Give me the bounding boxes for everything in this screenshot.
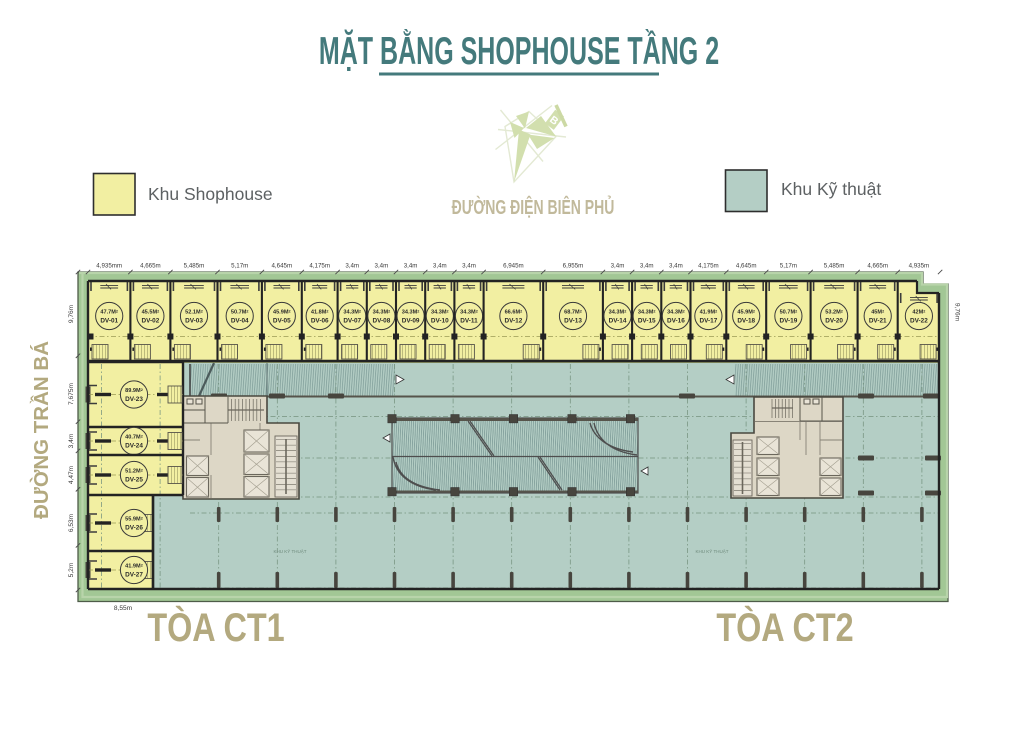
svg-text:DV-04: DV-04 bbox=[231, 318, 249, 325]
svg-text:Khu Shophouse: Khu Shophouse bbox=[148, 184, 273, 204]
svg-text:3,4m: 3,4m bbox=[611, 263, 625, 270]
svg-text:4,665m: 4,665m bbox=[140, 263, 161, 270]
svg-text:3,4m: 3,4m bbox=[433, 263, 447, 270]
svg-text:MẶT BẰNG SHOPHOUSE TẦNG 2: MẶT BẰNG SHOPHOUSE TẦNG 2 bbox=[319, 28, 719, 72]
svg-text:DV-27: DV-27 bbox=[125, 572, 143, 579]
svg-text:DV-21: DV-21 bbox=[869, 318, 887, 325]
svg-text:3,4m: 3,4m bbox=[640, 263, 654, 270]
svg-text:34.3M2: 34.3M2 bbox=[609, 309, 627, 315]
svg-text:4,935mm: 4,935mm bbox=[96, 263, 122, 270]
svg-text:40.7M2: 40.7M2 bbox=[125, 434, 143, 440]
svg-text:DV-18: DV-18 bbox=[737, 318, 755, 325]
svg-text:53.2M2: 53.2M2 bbox=[825, 309, 843, 315]
svg-text:ĐƯỜNG TRẦN BÁ: ĐƯỜNG TRẦN BÁ bbox=[29, 341, 53, 519]
svg-text:ĐƯỜNG ĐIỆN BIÊN PHỦ: ĐƯỜNG ĐIỆN BIÊN PHỦ bbox=[452, 195, 615, 218]
svg-text:KHU KỸ THUẬT: KHU KỸ THUẬT bbox=[274, 548, 307, 554]
svg-text:DV-05: DV-05 bbox=[273, 318, 291, 325]
svg-text:47.7M2: 47.7M2 bbox=[100, 309, 118, 315]
svg-text:DV-01: DV-01 bbox=[100, 318, 118, 325]
svg-text:6,955m: 6,955m bbox=[563, 263, 584, 270]
svg-text:DV-11: DV-11 bbox=[460, 318, 478, 325]
svg-text:KHU KỸ THUẬT: KHU KỸ THUẬT bbox=[696, 548, 729, 554]
svg-text:41.9M2: 41.9M2 bbox=[125, 563, 143, 569]
svg-text:51.2M2: 51.2M2 bbox=[125, 468, 143, 474]
svg-text:4,645m: 4,645m bbox=[271, 263, 292, 270]
svg-text:41.8M2: 41.8M2 bbox=[311, 309, 329, 315]
svg-text:50.7M2: 50.7M2 bbox=[231, 309, 249, 315]
svg-text:52.1M2: 52.1M2 bbox=[185, 309, 203, 315]
svg-text:4,47m: 4,47m bbox=[68, 465, 75, 484]
svg-text:68.7M2: 68.7M2 bbox=[564, 309, 582, 315]
svg-text:3,4m: 3,4m bbox=[375, 263, 389, 270]
svg-text:DV-03: DV-03 bbox=[185, 318, 203, 325]
svg-text:5,17m: 5,17m bbox=[231, 263, 248, 270]
svg-text:DV-12: DV-12 bbox=[505, 318, 523, 325]
svg-text:3,4m: 3,4m bbox=[68, 433, 75, 448]
svg-text:4,175m: 4,175m bbox=[309, 263, 330, 270]
svg-text:6,945m: 6,945m bbox=[503, 263, 524, 270]
svg-text:34.3M2: 34.3M2 bbox=[460, 309, 478, 315]
svg-text:55.9M2: 55.9M2 bbox=[125, 516, 143, 522]
svg-text:34.3M2: 34.3M2 bbox=[402, 309, 420, 315]
svg-text:DV-24: DV-24 bbox=[125, 443, 143, 450]
svg-text:45.5M2: 45.5M2 bbox=[142, 309, 160, 315]
svg-text:DV-14: DV-14 bbox=[609, 318, 627, 325]
svg-text:DV-15: DV-15 bbox=[638, 318, 656, 325]
svg-text:DV-10: DV-10 bbox=[431, 318, 449, 325]
svg-text:DV-02: DV-02 bbox=[142, 318, 160, 325]
svg-text:9,76m: 9,76m bbox=[954, 303, 961, 322]
svg-text:4,665m: 4,665m bbox=[867, 263, 888, 270]
svg-text:DV-09: DV-09 bbox=[402, 318, 420, 325]
svg-text:4,175m: 4,175m bbox=[698, 263, 719, 270]
svg-text:9,76m: 9,76m bbox=[68, 304, 75, 323]
svg-text:5,17m: 5,17m bbox=[780, 263, 797, 270]
svg-text:DV-17: DV-17 bbox=[700, 318, 718, 325]
svg-text:5,485m: 5,485m bbox=[184, 263, 205, 270]
svg-text:DV-19: DV-19 bbox=[780, 318, 798, 325]
svg-text:DV-08: DV-08 bbox=[373, 318, 391, 325]
svg-text:34.3M2: 34.3M2 bbox=[638, 309, 656, 315]
svg-text:34.3M2: 34.3M2 bbox=[431, 309, 449, 315]
svg-text:3,4m: 3,4m bbox=[669, 263, 683, 270]
svg-text:50.7M2: 50.7M2 bbox=[780, 309, 798, 315]
svg-text:8,55m: 8,55m bbox=[114, 605, 133, 612]
svg-text:DV-06: DV-06 bbox=[311, 318, 329, 325]
svg-text:DV-20: DV-20 bbox=[825, 318, 843, 325]
svg-text:5,2m: 5,2m bbox=[68, 562, 75, 577]
svg-text:4,935m: 4,935m bbox=[909, 263, 930, 270]
svg-text:89.9M2: 89.9M2 bbox=[125, 388, 143, 394]
svg-text:DV-07: DV-07 bbox=[343, 318, 361, 325]
svg-text:7,675m: 7,675m bbox=[68, 382, 75, 405]
svg-text:34.3M2: 34.3M2 bbox=[373, 309, 391, 315]
svg-text:3,4m: 3,4m bbox=[462, 263, 476, 270]
svg-text:41.9M2: 41.9M2 bbox=[700, 309, 718, 315]
svg-text:TÒA CT2: TÒA CT2 bbox=[716, 604, 853, 650]
svg-text:TÒA CT1: TÒA CT1 bbox=[147, 604, 284, 650]
svg-text:3,4m: 3,4m bbox=[404, 263, 418, 270]
svg-text:66.6M2: 66.6M2 bbox=[505, 309, 523, 315]
svg-text:DV-23: DV-23 bbox=[125, 396, 143, 403]
svg-text:45.9M2: 45.9M2 bbox=[737, 309, 755, 315]
svg-text:DV-13: DV-13 bbox=[564, 318, 582, 325]
svg-text:DV-22: DV-22 bbox=[910, 318, 928, 325]
svg-text:DV-26: DV-26 bbox=[125, 525, 143, 532]
svg-text:6,53m: 6,53m bbox=[68, 513, 75, 532]
svg-text:DV-16: DV-16 bbox=[667, 318, 685, 325]
svg-text:45.9M2: 45.9M2 bbox=[273, 309, 291, 315]
svg-text:4,645m: 4,645m bbox=[736, 263, 757, 270]
svg-text:34.3M2: 34.3M2 bbox=[343, 309, 361, 315]
svg-text:Khu Kỹ thuật: Khu Kỹ thuật bbox=[781, 179, 881, 199]
svg-text:5,485m: 5,485m bbox=[824, 263, 845, 270]
svg-text:3,4m: 3,4m bbox=[345, 263, 359, 270]
svg-text:DV-25: DV-25 bbox=[125, 477, 143, 484]
svg-text:34.3M2: 34.3M2 bbox=[667, 309, 685, 315]
